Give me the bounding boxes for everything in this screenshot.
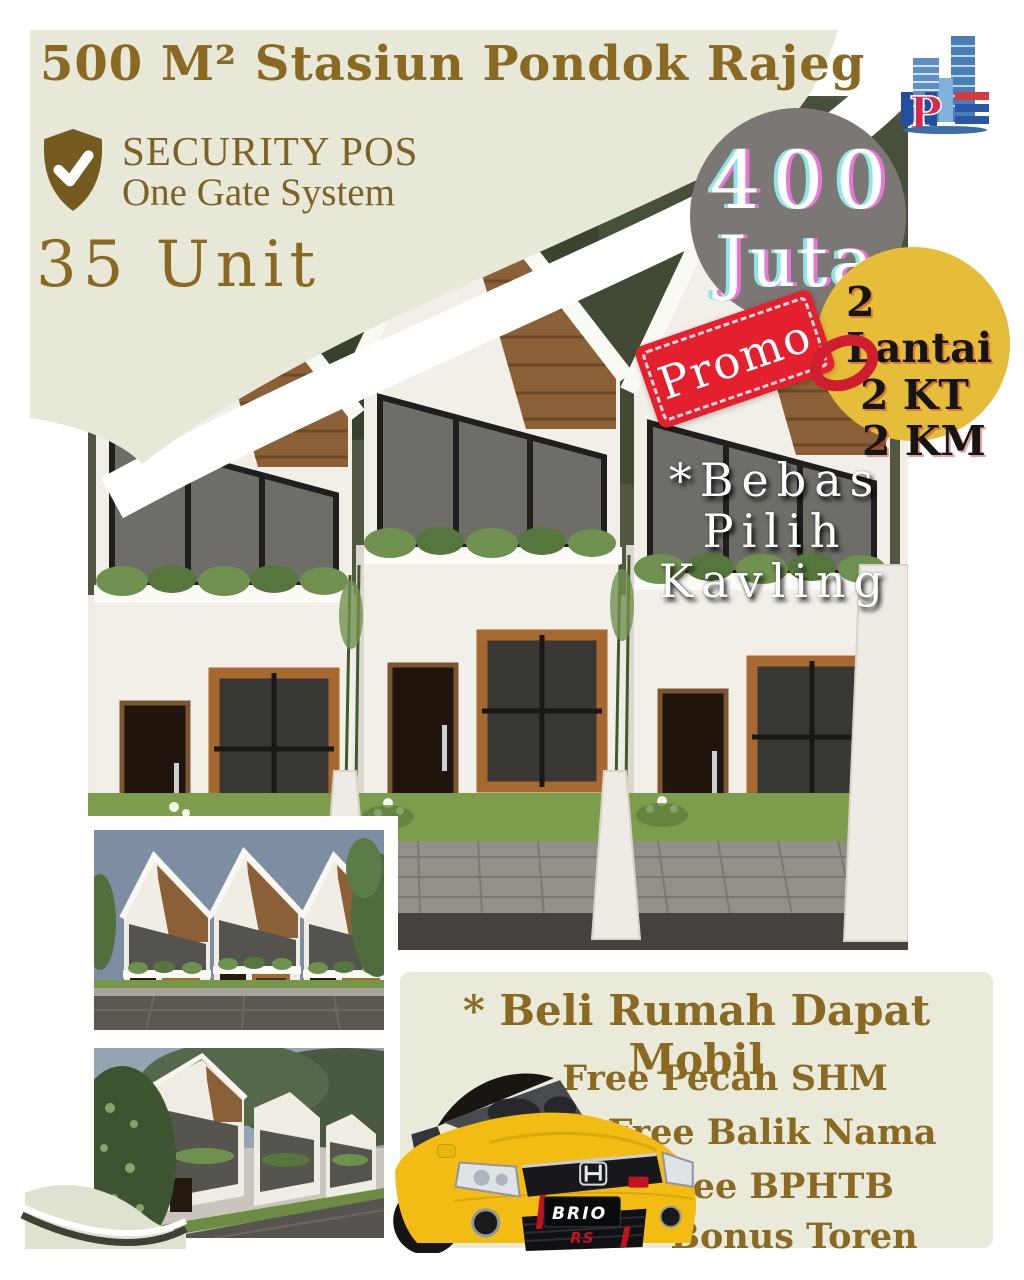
plot-note-line: *Bebas — [638, 455, 912, 506]
thumbnail-front-view — [80, 816, 398, 1044]
security-subtitle: One Gate System — [122, 173, 418, 213]
promo-tag-ring-icon — [798, 326, 890, 400]
security-title: SECURITY POS — [122, 131, 418, 173]
plot-choice-note: *Bebas Pilih Kavling — [638, 455, 912, 607]
plot-note-line: Pilih — [638, 506, 912, 557]
property-flyer: 500 M² Stasiun Pondok Rajeg SECURITY POS… — [0, 0, 1024, 1280]
developer-logo: P — [895, 30, 995, 138]
unit-count: 35 Unit — [36, 228, 321, 302]
car-graphic: BRIO RS — [393, 1050, 705, 1253]
page-title: 500 M² Stasiun Pondok Rajeg — [40, 36, 910, 92]
offer-item: Bonus Toren — [670, 1216, 917, 1257]
shield-check-icon — [36, 126, 110, 218]
plot-note-line: Kavling — [638, 556, 912, 607]
corner-swoosh-decoration — [0, 1167, 200, 1252]
car-trim-badge: RS — [570, 1229, 594, 1247]
price-amount: 400 — [690, 134, 906, 227]
thumbnail-front-graphic — [94, 830, 384, 1030]
car-badge: BRIO — [552, 1204, 607, 1224]
car-image: BRIO RS — [393, 1050, 705, 1253]
security-feature: SECURITY POS One Gate System — [36, 126, 418, 218]
